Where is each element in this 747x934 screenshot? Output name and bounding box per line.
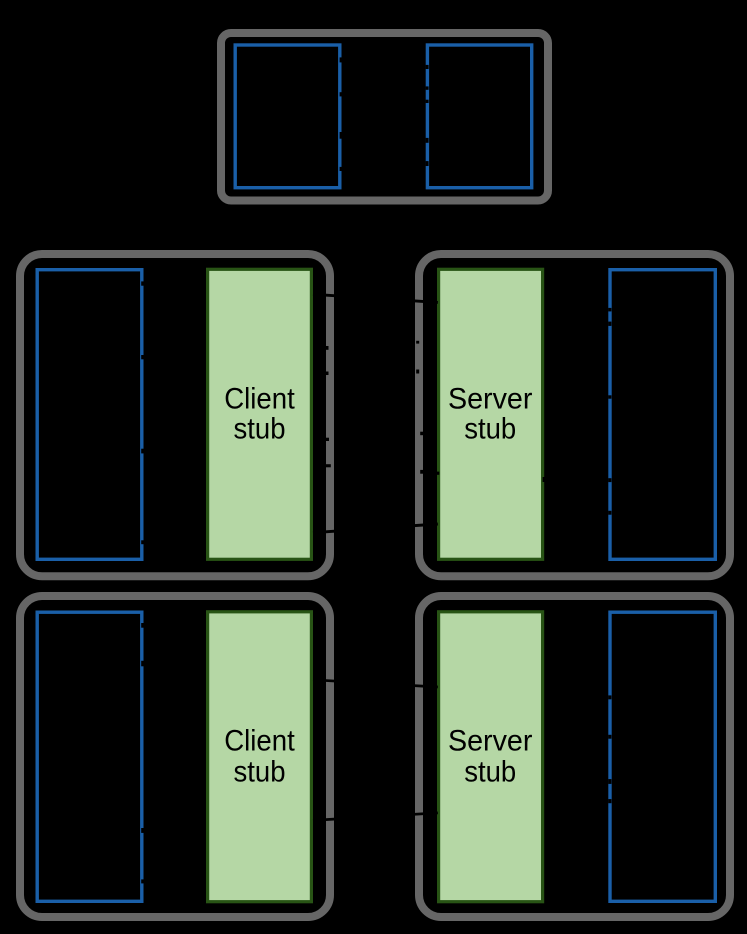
svg-text:stub: stub [464, 756, 516, 789]
svg-text:Server: Server [448, 383, 533, 416]
svg-text:Server: Server [448, 725, 533, 758]
svg-text:stub: stub [234, 756, 286, 789]
svg-text:stub: stub [464, 413, 516, 446]
svg-text:Client: Client [224, 725, 295, 758]
svg-text:Client: Client [224, 383, 295, 416]
svg-text:stub: stub [234, 413, 286, 446]
